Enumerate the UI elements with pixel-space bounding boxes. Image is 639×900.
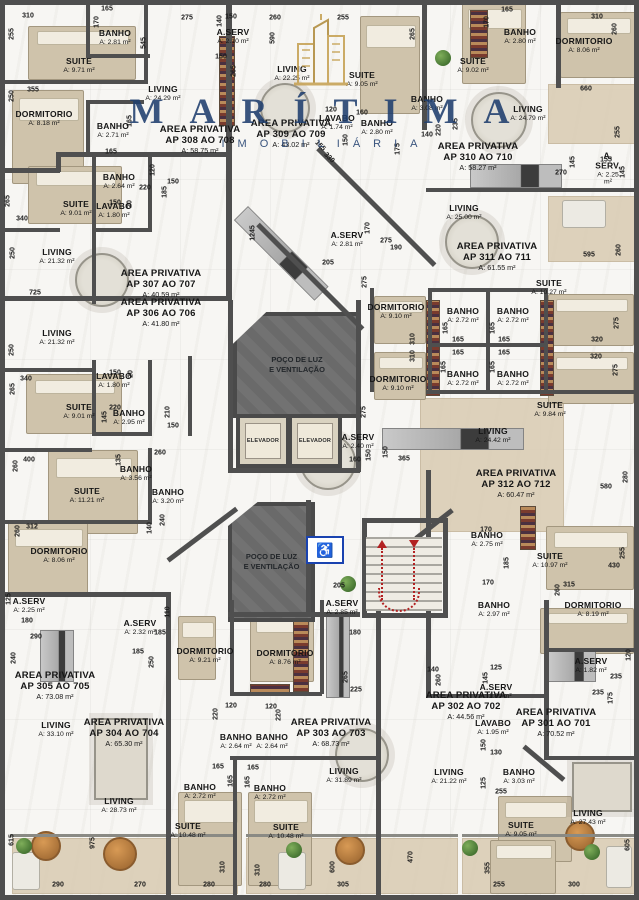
room-label: BANHOA: 2.71 m² — [97, 122, 129, 140]
room-label: DORMITORIOA: 9.10 m² — [369, 375, 426, 393]
room-name: LAVABO — [96, 372, 132, 382]
wheelchair-accessible-icon: ♿ — [306, 536, 344, 564]
light-well-label: POÇO DE LUZ E VENTILAÇÃO — [269, 355, 325, 375]
room-label: A. SERV.A: 2.25 m² — [593, 151, 624, 186]
dimension-label: 120 — [626, 649, 633, 661]
wall-segment — [320, 600, 324, 694]
dimension-label: 175 — [395, 143, 402, 155]
room-area: A: 9.10 m² — [369, 385, 426, 393]
dimension-label: 260 — [616, 244, 623, 256]
room-label: DORMITORIOA: 8.19 m² — [564, 601, 621, 619]
dimension-label: 250 — [149, 656, 156, 668]
room-name: SUITE — [70, 487, 105, 497]
room-label: BANHOA: 2.80 m² — [504, 28, 536, 46]
dimension-label: 150 — [366, 449, 373, 461]
room-name: A.SERV — [331, 231, 364, 241]
dimension-label: 220 — [276, 709, 283, 721]
kitchen-counter-icon — [234, 206, 329, 301]
room-label: SUITEA: 9.84 m² — [534, 401, 565, 419]
plant-icon — [462, 840, 478, 856]
dimension-label: 280 — [259, 882, 271, 889]
sofa-icon — [606, 846, 632, 888]
wall-segment — [486, 288, 490, 394]
room-label: SUITEA: 9.02 m² — [457, 57, 488, 75]
room-name: SUITE — [457, 57, 488, 67]
room-name: BANHO — [504, 28, 536, 38]
room-area: A: 3.20 m² — [152, 498, 184, 506]
room-label: AREA PRIVATIVA AP 306 AO 706A: 41.80 m² — [121, 298, 202, 328]
room-name: SUITE — [346, 71, 377, 81]
dimension-label: 205 — [333, 583, 345, 590]
room-label: LIVINGA: 25.00 m² — [446, 204, 481, 222]
room-area: A: 2.72 m² — [184, 793, 216, 801]
plant-icon — [584, 844, 600, 860]
room-area: A: 24.29 m² — [145, 95, 180, 103]
stairs-up-arrow-icon — [377, 540, 387, 548]
room-name: SUITE — [505, 821, 536, 831]
wall-segment — [428, 288, 432, 394]
room-label: DORMITORIOA: 8.76 m² — [256, 649, 313, 667]
room-area: A: 10.27 m² — [531, 289, 566, 297]
room-label: LIVINGA: 21.32 m² — [39, 329, 74, 347]
room-name: BANHO — [152, 488, 184, 498]
dimension-label: 975 — [90, 837, 97, 849]
room-area: A: 3.03 m² — [503, 778, 535, 786]
room-name: BANHO — [447, 370, 479, 380]
room-area: A: 2.97 m² — [478, 611, 510, 619]
dimension-label: 275 — [380, 238, 392, 245]
room-label: BANHOA: 2.72 m² — [184, 783, 216, 801]
dimension-label: 145 — [570, 156, 577, 168]
room-area: A: 2.80 m² — [504, 38, 536, 46]
elevator-left: ELEVADOR — [236, 414, 290, 468]
room-name: AREA PRIVATIVA AP 312 AO 712 — [476, 469, 557, 491]
dimension-label: 140 — [421, 132, 433, 139]
plant-icon — [435, 50, 451, 66]
room-label: A.SERVA: 1.82 m² — [575, 657, 608, 675]
dimension-label: 160 — [356, 110, 368, 117]
room-area: A: 2.40 m² — [342, 443, 375, 451]
room-name: DORMITORIO — [256, 649, 313, 659]
dimension-label: 150 — [383, 446, 390, 458]
room-area: A: 11.21 m² — [70, 497, 105, 505]
dimension-label: 210 — [165, 406, 172, 418]
dimension-label: 310 — [591, 14, 603, 21]
dimension-label: 280 — [623, 471, 630, 483]
room-name: DORMITORIO — [176, 647, 233, 657]
dimension-label: 660 — [580, 86, 592, 93]
room-name: LAVABO — [319, 114, 355, 124]
dimension-label: 165 — [490, 361, 497, 373]
dimension-label: 250 — [9, 344, 16, 356]
dimension-label: 255 — [620, 547, 627, 559]
lounge-chair-icon — [103, 837, 137, 871]
room-name: LIVING — [39, 329, 74, 339]
room-name: BANHO — [447, 307, 479, 317]
room-area: A: 61.55 m² — [457, 264, 538, 272]
wall-segment — [86, 100, 144, 104]
room-label: BANHOA: 2.95 m² — [113, 409, 145, 427]
wall-segment — [0, 0, 639, 5]
room-area: A: 60.47 m² — [476, 491, 557, 499]
room-label: DORMITORIOA: 9.10 m² — [367, 303, 424, 321]
room-label: LIVINGA: 21.32 m² — [39, 248, 74, 266]
wall-segment — [426, 600, 431, 696]
room-label: LAVABOA: 1.80 m² — [96, 372, 132, 390]
room-area: A: 73.08 m² — [15, 693, 96, 701]
dimension-label: 150 — [167, 179, 179, 186]
room-label: SUITEA: 9.05 m² — [505, 821, 536, 839]
room-label: BANHOA: 2.97 m² — [478, 601, 510, 619]
room-label: BANHOA: 3.03 m² — [503, 768, 535, 786]
dimension-label: 165 — [228, 775, 235, 787]
dimension-label: 260 — [154, 450, 166, 457]
room-name: AREA PRIVATIVA AP 311 AO 711 — [457, 242, 538, 264]
room-label: LIVINGA: 31.89 m² — [326, 767, 361, 785]
room-label: AREA PRIVATIVA AP 302 AO 702A: 44.56 m² — [426, 691, 507, 721]
dimension-label: 140 — [217, 15, 224, 27]
wall-segment — [228, 300, 233, 472]
room-name: BANHO — [99, 29, 131, 39]
wall-segment — [0, 80, 148, 84]
room-name: LIVING — [274, 65, 309, 75]
room-area: A: 2.64 m² — [256, 743, 288, 751]
dimension-label: 220 — [139, 185, 151, 192]
room-area: A: 1.80 m² — [96, 382, 132, 390]
room-name: LIVING — [510, 105, 545, 115]
room-label: BANHOA: 2.72 m² — [254, 784, 286, 802]
wall-segment — [148, 448, 152, 522]
dimension-label: 725 — [29, 290, 41, 297]
room-area: A: 8.06 m² — [555, 47, 612, 55]
lounge-chair-icon — [335, 835, 365, 865]
room-name: DORMITORIO — [555, 37, 612, 47]
room-label: LAVABOA: 1.95 m² — [475, 719, 511, 737]
dimension-label: 340 — [20, 376, 32, 383]
dimension-label: 170 — [365, 222, 372, 234]
room-label: BANHOA: 2.80 m² — [361, 119, 393, 137]
room-name: AREA PRIVATIVA AP 304 AO 704 — [84, 718, 165, 740]
room-label: SUITEA: 9.71 m² — [63, 57, 94, 75]
dimension-label: 305 — [337, 882, 349, 889]
room-label: SUITEA: 11.21 m² — [70, 487, 105, 505]
wall-segment — [426, 390, 639, 394]
dimension-label: 290 — [52, 882, 64, 889]
room-area: A: 2.72 m² — [447, 317, 479, 325]
room-name: A.SERV — [13, 597, 46, 607]
room-area: A: 3.08 m² — [411, 105, 443, 113]
room-label: AREA PRIVATIVA AP 312 AO 712A: 60.47 m² — [476, 469, 557, 499]
dimension-label: 165 — [501, 7, 513, 14]
stairs-down-arrow-icon — [409, 540, 419, 548]
room-name: BANHO — [103, 173, 135, 183]
dimension-label: 120 — [150, 164, 157, 176]
wall-segment-diagonal — [166, 507, 238, 563]
wall-segment — [426, 188, 636, 192]
wall-segment — [362, 613, 448, 618]
dimension-label: 265 — [343, 671, 350, 683]
room-area: A: 1.82 m² — [575, 667, 608, 675]
room-label: DORMITORIOA: 8.06 m² — [555, 37, 612, 55]
room-area: A: 2.71 m² — [97, 132, 129, 140]
room-name: BANHO — [113, 409, 145, 419]
room-name: AREA PRIVATIVA AP 310 AO 710 — [438, 142, 519, 164]
light-well-label: POÇO DE LUZ E VENTILAÇÃO — [244, 552, 300, 572]
room-name: SUITE — [63, 403, 94, 413]
dimension-label: 235 — [453, 118, 460, 130]
room-area: A: 8.19 m² — [564, 611, 621, 619]
room-area: A: 9.01 m² — [63, 413, 94, 421]
room-area: A: 41.80 m² — [121, 320, 202, 328]
room-label: LIVINGA: 21.22 m² — [431, 768, 466, 786]
room-label: AREA PRIVATIVA AP 311 AO 711A: 61.55 m² — [457, 242, 538, 272]
room-label: AREA PRIVATIVA AP 310 AO 710A: 58.27 m² — [438, 142, 519, 172]
dimension-label: 190 — [390, 245, 402, 252]
dining-table-icon — [572, 762, 632, 812]
room-label: BANHOA: 2.75 m² — [471, 531, 503, 549]
room-label: AREA PRIVATIVA AP 301 AO 701A: 70.52 m² — [516, 708, 597, 738]
wall-segment — [0, 895, 639, 900]
room-name: DORMITORIO — [367, 303, 424, 313]
room-area: A: 2.72 m² — [497, 317, 529, 325]
dimension-label: 310 — [22, 13, 34, 20]
dimension-label: 260 — [612, 23, 619, 35]
dimension-label: 320 — [590, 354, 602, 361]
wall-segment — [86, 100, 90, 156]
room-label: A.SERVA: 2.81 m² — [331, 231, 364, 249]
room-area: A: 24.42 m² — [475, 437, 510, 445]
dimension-label: 160 — [349, 457, 361, 464]
dimension-label: 150 — [343, 134, 350, 146]
dimension-label: 615 — [9, 834, 16, 846]
dimension-label: 180 — [349, 630, 361, 637]
room-label: LIVINGA: 24.29 m² — [145, 85, 180, 103]
dimension-label: 170 — [482, 580, 494, 587]
room-name: A.SERV — [124, 619, 157, 629]
dimension-label: 365 — [398, 456, 410, 463]
room-area: A: 2.80 m² — [361, 129, 393, 137]
dimension-label: 150 — [215, 54, 227, 61]
dimension-label: 125 — [481, 777, 488, 789]
dimension-label: 235 — [610, 674, 622, 681]
dimension-label: 270 — [134, 882, 146, 889]
dimension-label: 220 — [436, 124, 443, 136]
wall-segment — [544, 288, 548, 394]
dimension-label: 220 — [213, 708, 220, 720]
wall-segment — [86, 54, 150, 58]
room-label: AREA PRIVATIVA AP 304 AO 704A: 65.30 m² — [84, 718, 165, 748]
room-area: A: 1.80 m² — [96, 212, 132, 220]
room-name: BANHO — [184, 783, 216, 793]
dimension-label: 1245 — [250, 225, 257, 241]
room-area: A: 9.01 m² — [60, 210, 91, 218]
room-area: A: 70.52 m² — [516, 730, 597, 738]
room-area: A: 27.43 m² — [570, 819, 605, 827]
dimension-label: 165 — [247, 765, 259, 772]
dimension-label: 165 — [490, 322, 497, 334]
dimension-label: 125 — [490, 665, 502, 672]
room-label: A.SERVA: 2.85 m² — [326, 599, 359, 617]
dimension-label: 260 — [269, 15, 281, 22]
room-label: A.SERVA: 2.25 m² — [13, 597, 46, 615]
room-name: BANHO — [120, 465, 152, 475]
terrace-rail — [462, 834, 636, 837]
wall-segment — [428, 343, 546, 347]
room-name: A.SERV — [217, 28, 250, 38]
room-area: A: 43.02 m² — [251, 141, 332, 149]
room-label: LIVINGA: 24.79 m² — [510, 105, 545, 123]
floor-plan: POÇO DE LUZ E VENTILAÇÃO POÇO DE LUZ E V… — [0, 0, 639, 900]
dimension-label: 355 — [485, 862, 492, 874]
wall-segment — [166, 592, 171, 895]
dimension-label: 255 — [493, 882, 505, 889]
dimension-label: 315 — [563, 582, 575, 589]
dimension-label: 110 — [165, 606, 172, 617]
room-label: BANHOA: 3.56 m² — [120, 465, 152, 483]
kitchen-counter-icon — [326, 612, 350, 698]
room-label: BANHOA: 2.72 m² — [447, 307, 479, 325]
dimension-label: 165 — [212, 764, 224, 771]
light-well-top: POÇO DE LUZ E VENTILAÇÃO — [233, 312, 361, 418]
room-name: SUITE — [534, 401, 565, 411]
dimension-label: 275 — [613, 364, 620, 376]
room-label: LAVABOA: 1.80 m² — [96, 202, 132, 220]
elevator-right: ELEVADOR — [288, 414, 342, 468]
room-name: AREA PRIVATIVA AP 303 AO 703 — [291, 718, 372, 740]
room-area: A: 2.95 m² — [113, 419, 145, 427]
room-area: A: 8.06 m² — [30, 557, 87, 565]
dimension-label: 275 — [181, 15, 193, 22]
room-name: SUITE — [532, 552, 567, 562]
wall-segment — [92, 432, 152, 436]
wall-segment — [0, 520, 152, 524]
room-area: A: 58.27 m² — [438, 164, 519, 172]
dimension-label: 250 — [9, 90, 16, 102]
room-name: LIVING — [145, 85, 180, 95]
room-name: BANHO — [503, 768, 535, 778]
room-label: BANHOA: 3.08 m² — [411, 95, 443, 113]
dimension-label: 170 — [94, 16, 101, 28]
room-area: A: 2.72 m² — [497, 380, 529, 388]
room-label: BANHOA: 2.81 m² — [99, 29, 131, 47]
room-area: A: 65.30 m² — [84, 740, 165, 748]
elevator-label: ELEVADOR — [299, 438, 331, 444]
room-label: SUITEA: 9.01 m² — [63, 403, 94, 421]
room-name: A.SERV — [342, 433, 375, 443]
dimension-label: 260 — [13, 460, 20, 472]
dimension-label: 165 — [498, 337, 510, 344]
dimension-label: 340 — [16, 216, 28, 223]
room-label: SUITEA: 9.05 m² — [346, 71, 377, 89]
room-name: DORMITORIO — [15, 110, 72, 120]
wall-segment — [56, 152, 61, 172]
room-area: A: 10.48 m² — [268, 833, 303, 841]
room-label: AREA PRIVATIVA AP 305 AO 705A: 73.08 m² — [15, 671, 96, 701]
dimension-label: 240 — [160, 514, 167, 526]
dimension-label: 225 — [350, 687, 362, 694]
dimension-label: 150 — [167, 423, 179, 430]
room-label: BANHOA: 3.20 m² — [152, 488, 184, 506]
dimension-label: 275 — [362, 276, 369, 288]
room-name: DORMITORIO — [564, 601, 621, 611]
wall-segment — [228, 468, 360, 473]
dimension-label: 130 — [490, 750, 502, 757]
room-name: BANHO — [220, 733, 252, 743]
dimension-label: 260 — [555, 584, 562, 596]
room-label: A.SERVA: 2.10 m² — [217, 28, 250, 46]
dimension-label: 355 — [27, 87, 39, 94]
dimension-label: 250 — [10, 247, 17, 259]
dimension-label: 300 — [568, 882, 580, 889]
dimension-label: 260 — [436, 674, 443, 686]
dimension-label: 590 — [270, 32, 277, 44]
dimension-label: 580 — [600, 484, 612, 491]
room-area: A: 9.21 m² — [176, 657, 233, 665]
elevator-label: ELEVADOR — [247, 438, 279, 444]
room-label: LIVINGA: 27.43 m² — [570, 809, 605, 827]
terrace-rug — [548, 84, 636, 144]
dimension-label: 145 — [102, 411, 109, 423]
room-name: SUITE — [63, 57, 94, 67]
room-area: A: 28.73 m² — [101, 807, 136, 815]
closet-icon — [520, 506, 536, 550]
room-area: A: 31.89 m² — [326, 777, 361, 785]
room-area: A: 2.10 m² — [217, 38, 250, 46]
room-name: SUITE — [268, 823, 303, 833]
room-area: A: 33.10 m² — [38, 731, 73, 739]
room-area: A: 9.02 m² — [457, 67, 488, 75]
room-label: BANHOA: 2.64 m² — [220, 733, 252, 751]
dimension-label: 265 — [410, 28, 417, 40]
dimension-label: 310 — [255, 864, 262, 876]
dimension-label: 140 — [427, 667, 439, 674]
dimension-label: 275 — [361, 406, 368, 418]
dimension-label: 600 — [330, 861, 337, 873]
wall-segment — [86, 0, 90, 58]
dimension-label: 180 — [21, 618, 33, 625]
room-name: BANHO — [478, 601, 510, 611]
dimension-label: 275 — [614, 317, 621, 329]
dimension-label: 320 — [591, 337, 603, 344]
dimension-label: 150 — [225, 14, 237, 21]
dimension-label: 470 — [408, 851, 415, 863]
room-name: LAVABO — [96, 202, 132, 212]
room-label: A.SERVA: 2.40 m² — [342, 433, 375, 451]
room-area: A: 8.18 m² — [15, 120, 72, 128]
dimension-label: 165 — [245, 776, 252, 788]
plant-icon — [16, 838, 32, 854]
room-name: A.SERV — [575, 657, 608, 667]
room-area: A: 2.75 m² — [471, 541, 503, 549]
room-name: AREA PRIVATIVA AP 308 AO 708 — [160, 125, 241, 147]
room-area: A: 2.64 m² — [103, 183, 135, 191]
room-area: A: 21.22 m² — [431, 778, 466, 786]
wall-segment — [188, 356, 192, 436]
room-name: LIVING — [326, 767, 361, 777]
wall-segment — [0, 168, 60, 173]
room-name: BANHO — [254, 784, 286, 794]
room-name: BANHO — [497, 370, 529, 380]
room-area: A: 2.25 m² — [13, 607, 46, 615]
dimension-label: 165 — [452, 350, 464, 357]
dimension-label: 310 — [410, 350, 417, 362]
room-label: SUITEA: 10.48 m² — [268, 823, 303, 841]
room-label: BANHOA: 2.64 m² — [103, 173, 135, 191]
room-name: LIVING — [39, 248, 74, 258]
dimension-label: 165 — [105, 149, 117, 156]
room-name: BANHO — [411, 95, 443, 105]
room-area: A: 25.00 m² — [446, 214, 481, 222]
